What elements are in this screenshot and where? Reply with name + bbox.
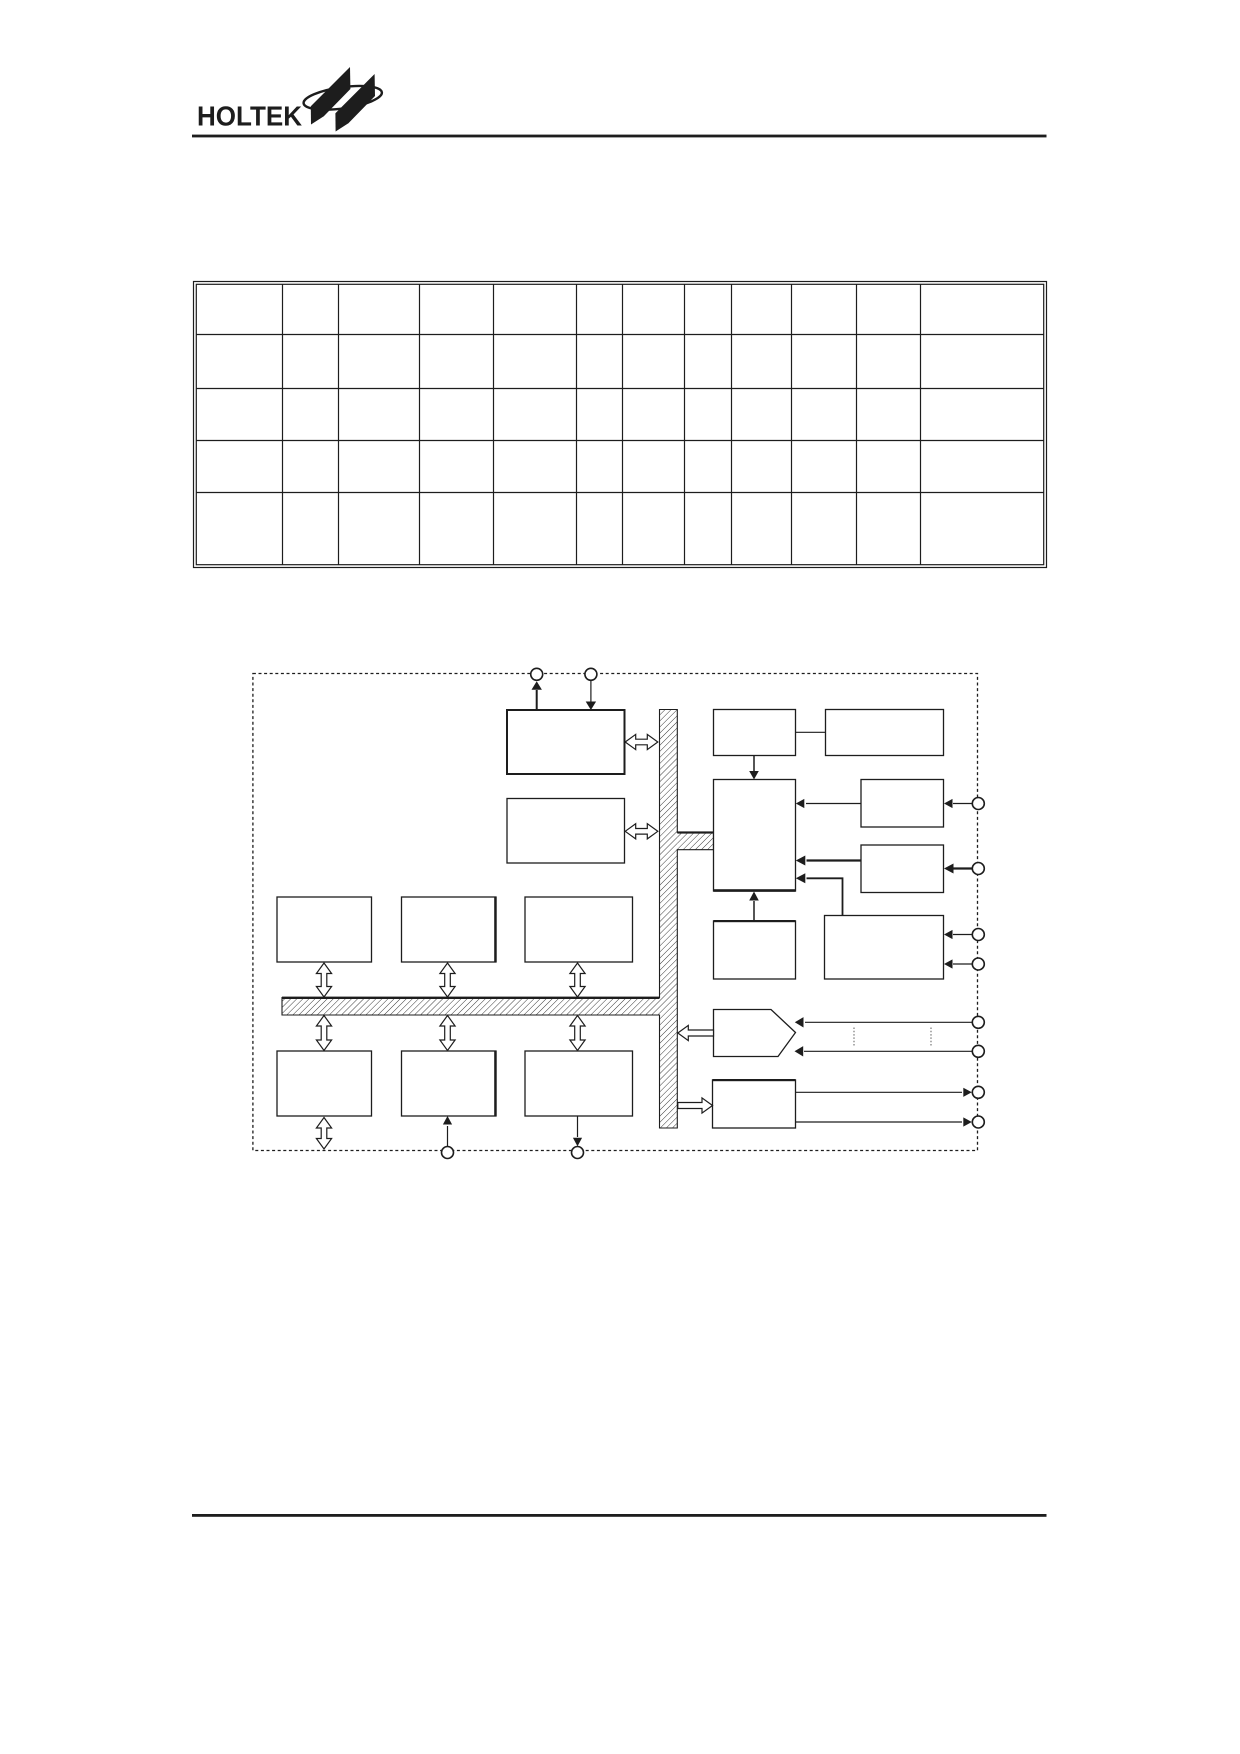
svg-text:HOLTEK: HOLTEK bbox=[197, 101, 302, 132]
